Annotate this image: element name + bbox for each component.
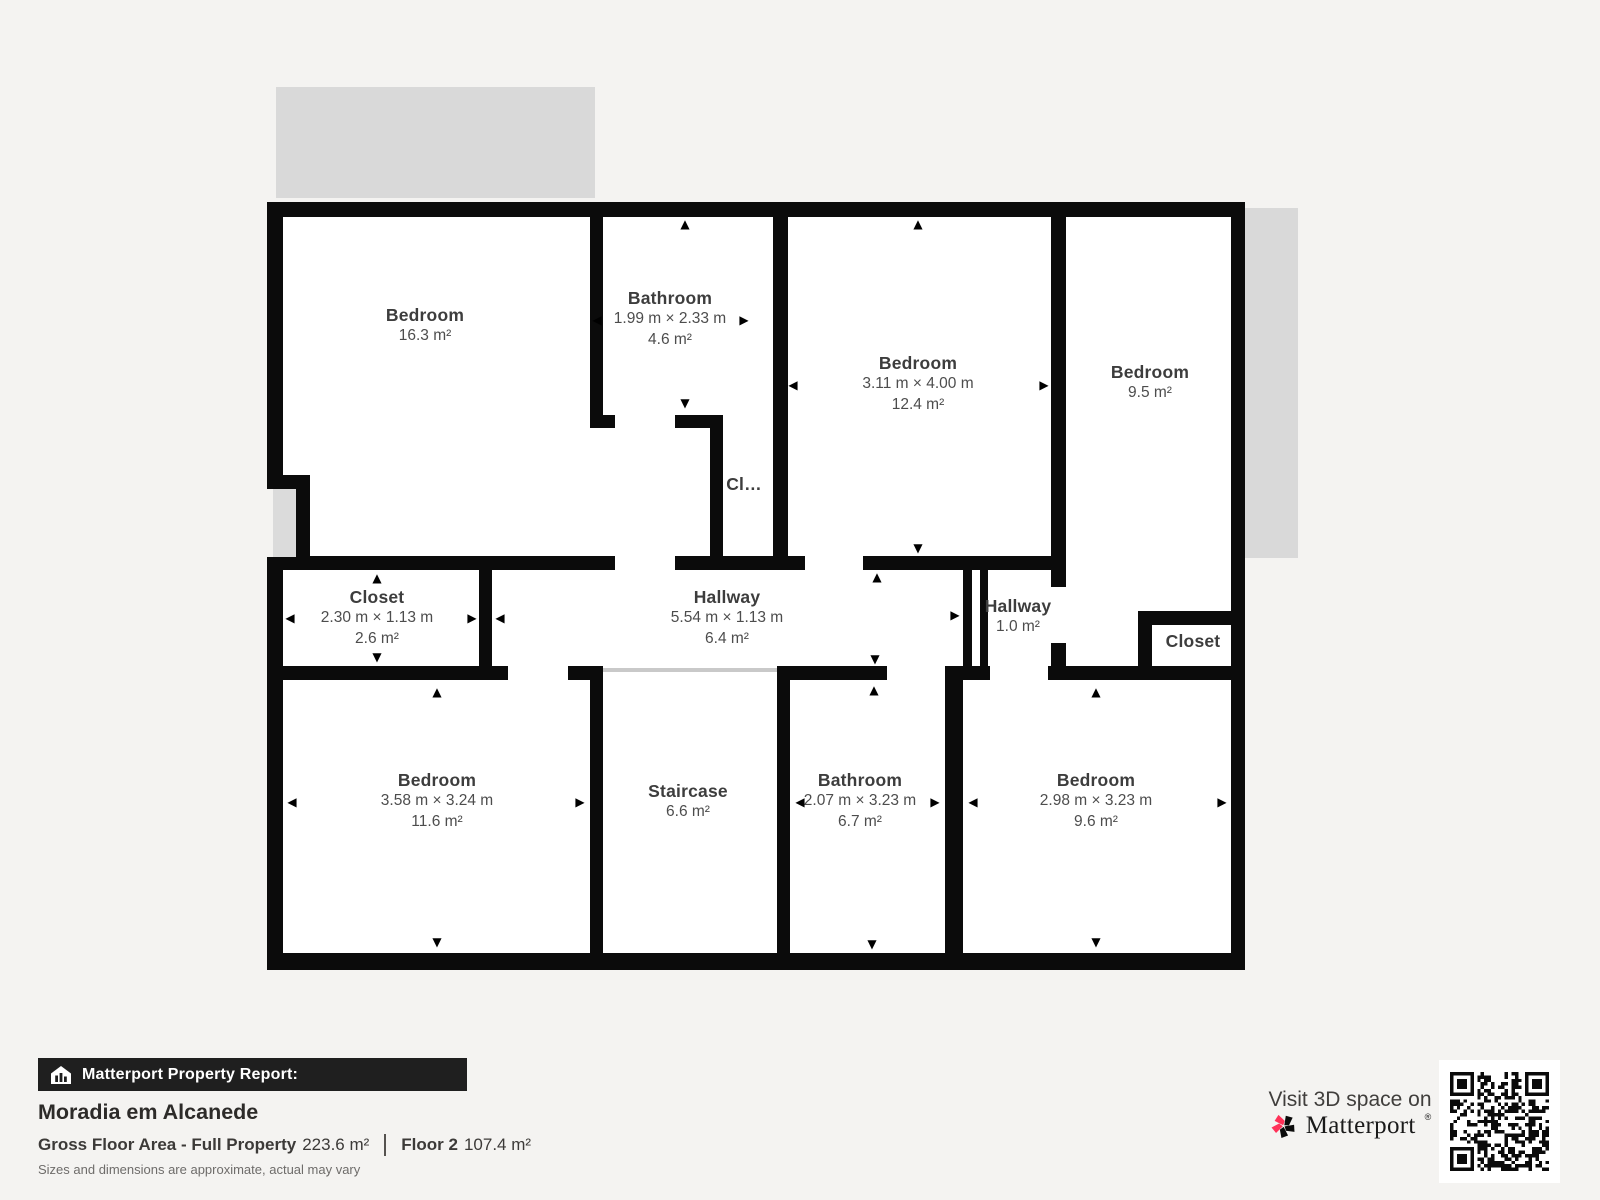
dim-arrow-right-icon: ▶ [1039, 379, 1048, 391]
dim-arrow-up-icon: ▲ [869, 684, 878, 696]
room-label-bedroom-right: Bedroom 9.5 m² [1111, 361, 1189, 404]
dim-arrow-left-icon: ◀ [495, 612, 504, 624]
report-header-bar: Matterport Property Report: [38, 1058, 467, 1091]
dim-arrow-down-icon: ▼ [432, 936, 441, 948]
floorplan-walls [0, 0, 1600, 1200]
room-area: 2.6 m² [321, 629, 433, 650]
room-name: Bedroom [862, 352, 973, 374]
room-label-bedroom-bottom-right: Bedroom 2.98 m × 3.23 m 9.6 m² [1040, 769, 1152, 832]
floor-value: 107.4 m² [464, 1133, 531, 1157]
property-report-icon [51, 1066, 71, 1084]
room-name: Bedroom [1040, 769, 1152, 791]
dim-arrow-left-icon: ◀ [795, 796, 804, 808]
qr-code-pattern [1450, 1072, 1549, 1171]
dim-arrow-down-icon: ▼ [867, 938, 876, 950]
room-dimensions: 5.54 m × 1.13 m [671, 608, 783, 629]
dim-arrow-right-icon: ▶ [950, 609, 959, 621]
room-name: Closet [321, 586, 433, 608]
room-area: 16.3 m² [386, 326, 464, 347]
room-label-bedroom-large: Bedroom 16.3 m² [386, 304, 464, 347]
qr-code [1439, 1060, 1560, 1183]
room-area: 6.6 m² [648, 802, 728, 823]
dim-arrow-right-icon: ▶ [575, 796, 584, 808]
room-label-staircase: Staircase 6.6 m² [648, 780, 728, 823]
room-name: Staircase [648, 780, 728, 802]
room-label-closet-left: Closet 2.30 m × 1.13 m 2.6 m² [321, 586, 433, 649]
terrace-right [1245, 208, 1298, 558]
dim-arrow-right-icon: ▶ [1217, 796, 1226, 808]
dim-arrow-up-icon: ▲ [432, 686, 441, 698]
room-name: Cl… [726, 473, 762, 495]
room-name: Bedroom [1111, 361, 1189, 383]
room-label-bedroom-middle: Bedroom 3.11 m × 4.00 m 12.4 m² [862, 352, 973, 415]
floor-area-line: Gross Floor Area - Full Property 223.6 m… [38, 1133, 531, 1157]
gross-floor-area-label: Gross Floor Area - Full Property [38, 1133, 296, 1157]
room-name: Bathroom [804, 769, 916, 791]
dim-arrow-left-icon: ◀ [968, 796, 977, 808]
room-name: Bedroom [386, 304, 464, 326]
room-area: 6.4 m² [671, 629, 783, 650]
dim-arrow-left-icon: ◀ [285, 612, 294, 624]
room-dimensions: 2.30 m × 1.13 m [321, 608, 433, 629]
dim-arrow-down-icon: ▼ [870, 653, 879, 665]
dim-arrow-up-icon: ▲ [1091, 686, 1100, 698]
room-label-bedroom-bottom-left: Bedroom 3.58 m × 3.24 m 11.6 m² [381, 769, 493, 832]
dim-arrow-left-icon: ◀ [287, 796, 296, 808]
room-name: Bathroom [614, 287, 726, 309]
room-area: 1.0 m² [985, 617, 1052, 638]
dim-arrow-left-icon: ◀ [592, 314, 601, 326]
matterport-wordmark: Matterport [1306, 1112, 1416, 1140]
dim-arrow-down-icon: ▼ [372, 651, 381, 663]
dim-arrow-up-icon: ▲ [913, 218, 922, 230]
room-area: 11.6 m² [381, 812, 493, 833]
registered-mark: ® [1425, 1113, 1432, 1122]
disclaimer-text: Sizes and dimensions are approximate, ac… [38, 1161, 360, 1178]
room-area: 4.6 m² [614, 330, 726, 351]
dim-arrow-down-icon: ▼ [680, 397, 689, 409]
room-dimensions: 3.11 m × 4.00 m [862, 374, 973, 395]
room-label-closet-right: Closet [1166, 630, 1221, 652]
divider [384, 1134, 386, 1156]
visit-3d-text: Visit 3D space on [1268, 1088, 1431, 1112]
room-label-bathroom-bottom: Bathroom 2.07 m × 3.23 m 6.7 m² [804, 769, 916, 832]
room-area: 6.7 m² [804, 812, 916, 833]
room-dimensions: 3.58 m × 3.24 m [381, 791, 493, 812]
dim-arrow-right-icon: ▶ [930, 796, 939, 808]
room-label-hallway-main: Hallway 5.54 m × 1.13 m 6.4 m² [671, 586, 783, 649]
staircase-open-edge [603, 668, 777, 672]
dim-arrow-right-icon: ▶ [739, 314, 748, 326]
report-bar-label: Matterport Property Report: [82, 1067, 298, 1083]
room-label-hallway-small: Hallway 1.0 m² [985, 595, 1052, 638]
dim-arrow-left-icon: ◀ [788, 379, 797, 391]
matterport-floorplan-report: Bedroom 16.3 m² Bathroom 1.99 m × 2.33 m… [0, 0, 1600, 1200]
dim-arrow-right-icon: ▶ [467, 612, 476, 624]
matterport-logo: Matterport® [1270, 1112, 1431, 1140]
terrace-top [276, 87, 595, 198]
matterport-pinwheel-icon [1270, 1112, 1298, 1140]
room-area: 9.6 m² [1040, 812, 1152, 833]
dim-arrow-up-icon: ▲ [872, 571, 881, 583]
dim-arrow-down-icon: ▼ [913, 542, 922, 554]
room-name: Closet [1166, 630, 1221, 652]
room-name: Hallway [985, 595, 1052, 617]
room-label-bathroom-top: Bathroom 1.99 m × 2.33 m 4.6 m² [614, 287, 726, 350]
room-dimensions: 1.99 m × 2.33 m [614, 309, 726, 330]
wall-niche [273, 489, 296, 557]
room-dimensions: 2.98 m × 3.23 m [1040, 791, 1152, 812]
room-area: 12.4 m² [862, 395, 973, 416]
room-area: 9.5 m² [1111, 383, 1189, 404]
property-name: Moradia em Alcanede [38, 1099, 258, 1125]
room-dimensions: 2.07 m × 3.23 m [804, 791, 916, 812]
room-name: Bedroom [381, 769, 493, 791]
dim-arrow-up-icon: ▲ [680, 218, 689, 230]
gross-floor-area-value: 223.6 m² [302, 1133, 369, 1157]
dim-arrow-down-icon: ▼ [1091, 936, 1100, 948]
dim-arrow-up-icon: ▲ [372, 572, 381, 584]
floor-label: Floor 2 [401, 1133, 458, 1157]
room-name: Hallway [671, 586, 783, 608]
room-label-closet-truncated: Cl… [726, 473, 762, 495]
